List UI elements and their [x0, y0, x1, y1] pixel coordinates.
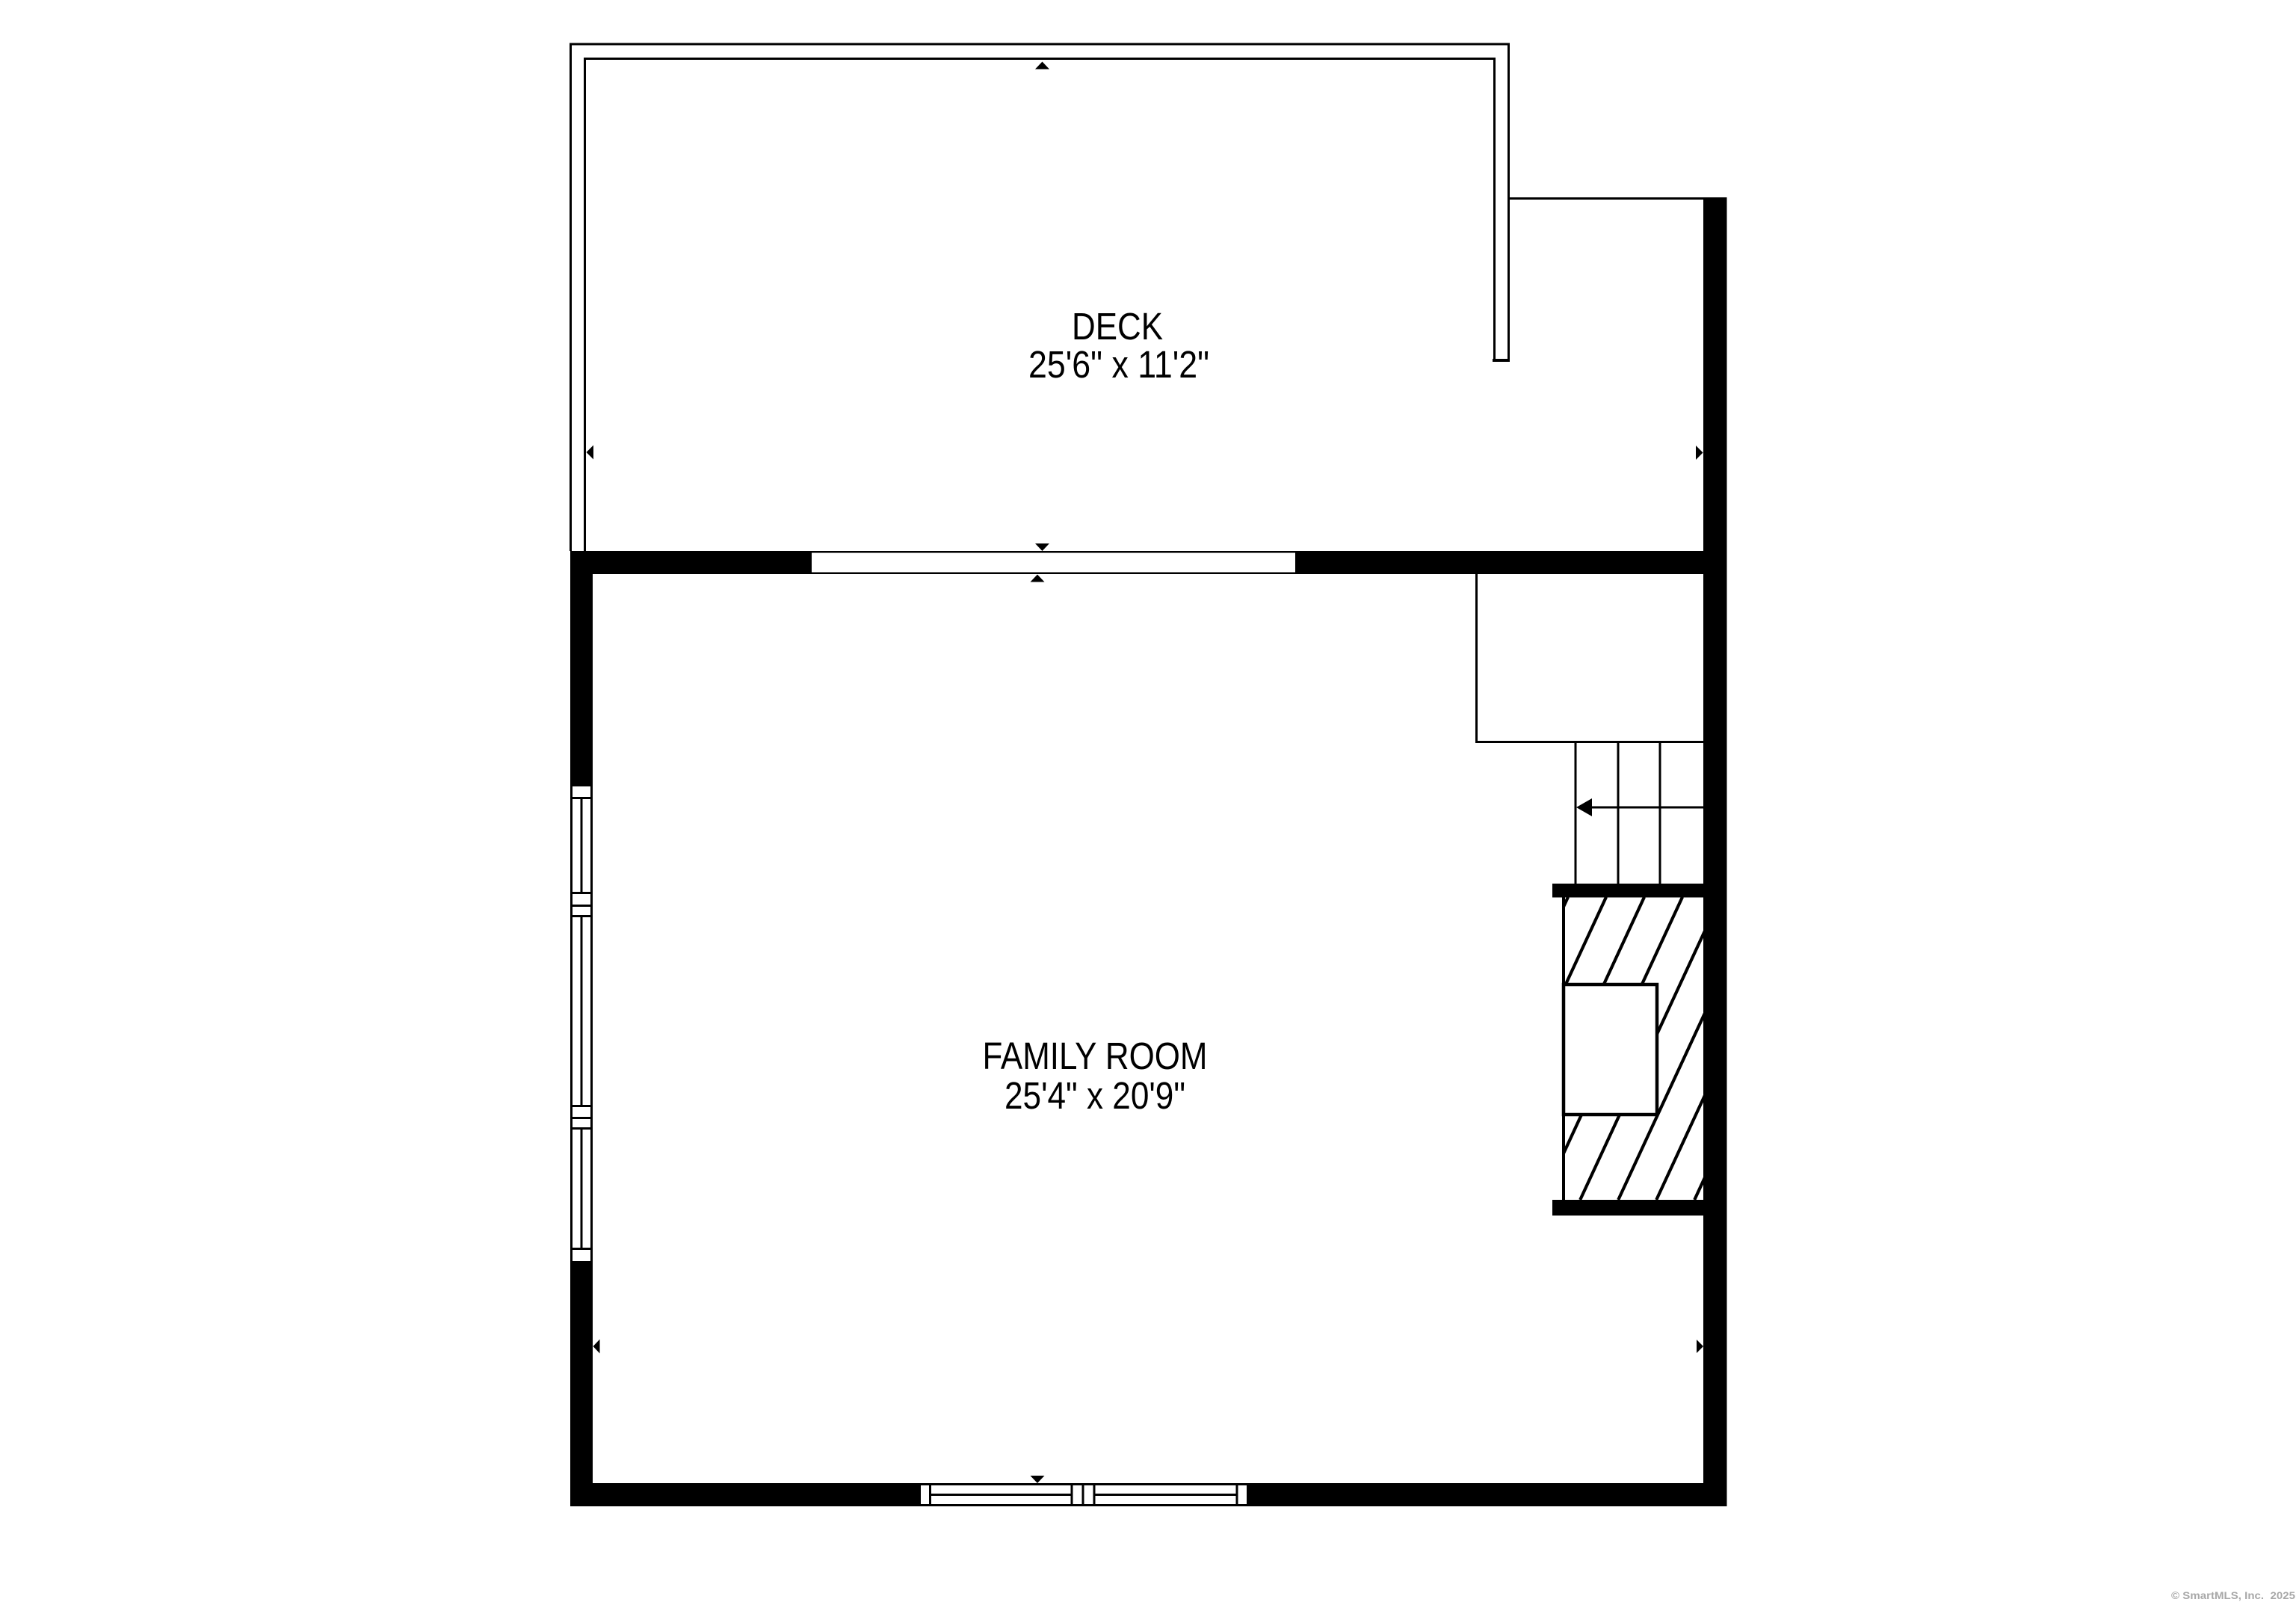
svg-text:25'6" x 11'2": 25'6" x 11'2" [1028, 343, 1209, 386]
svg-text:FAMILY ROOM: FAMILY ROOM [983, 1035, 1208, 1077]
svg-text:© SmartMLS, Inc. 2025: © SmartMLS, Inc. 2025 [2171, 1589, 2295, 1601]
svg-text:25'4" x 20'9": 25'4" x 20'9" [1004, 1074, 1185, 1117]
svg-text:DECK: DECK [1072, 305, 1163, 348]
